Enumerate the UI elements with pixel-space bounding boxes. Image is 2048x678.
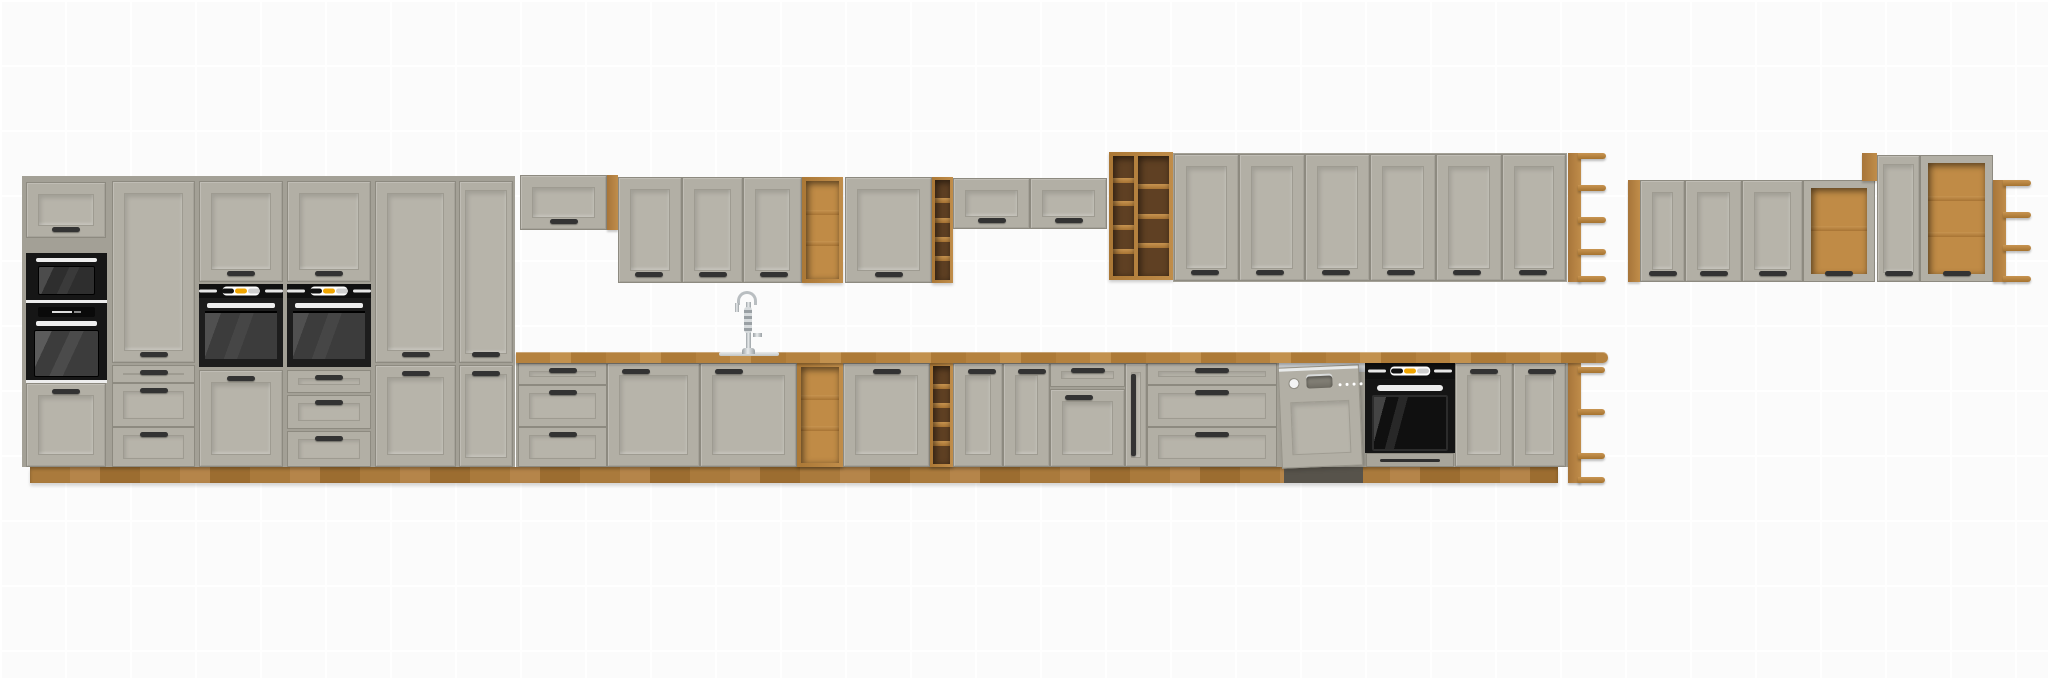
shelf-board — [1578, 217, 1606, 223]
base-drawer — [1147, 427, 1277, 467]
base-door — [700, 363, 797, 467]
drawer — [287, 395, 371, 429]
shelf-cavity — [933, 366, 950, 464]
wall-open-cabinet-tall — [1920, 155, 1993, 282]
base-drawer — [518, 385, 607, 427]
drawer — [112, 383, 195, 427]
base-drawer — [518, 363, 607, 385]
tall-door-narrow — [459, 181, 513, 363]
wall-door-tall — [1877, 155, 1920, 282]
base-drawer — [518, 427, 607, 467]
wall-door — [1436, 154, 1502, 281]
shelf-cavity — [1928, 163, 1985, 274]
shelf-board — [1578, 409, 1605, 415]
dishwasher-control-panel — [1285, 372, 1353, 395]
shelf-board — [1578, 453, 1605, 459]
oven-base-drawer — [1366, 453, 1454, 467]
shelf-board — [1578, 185, 1606, 191]
wall-door — [1640, 180, 1685, 282]
oven-control-panel — [1365, 363, 1455, 379]
shelf-board — [1578, 477, 1605, 483]
faucet-base — [742, 348, 755, 354]
base-built-in-oven — [1365, 363, 1455, 453]
wall-cubby-shelf — [932, 177, 953, 283]
tall-lower-door-narrow — [459, 365, 513, 467]
wall-door — [1305, 154, 1370, 281]
wall-door — [1239, 154, 1305, 281]
tall-door — [375, 181, 456, 363]
shelf-cavity — [806, 181, 839, 279]
wall-door — [1685, 180, 1742, 282]
shelf-cavity — [801, 367, 839, 463]
dishwasher-gap-shadow — [1284, 467, 1363, 483]
wall-open-unit — [1109, 152, 1173, 280]
drawer — [287, 370, 371, 393]
wall-door — [845, 177, 932, 283]
base-cubby-shelf — [930, 363, 953, 467]
pullout-door — [1125, 363, 1147, 467]
tall-door — [112, 181, 195, 363]
tall-lower-door — [199, 370, 283, 467]
wall-door — [1742, 180, 1803, 282]
wall-door — [1502, 154, 1566, 281]
wall-corner-shelf-panel — [1993, 180, 2006, 282]
tall-lower-door — [375, 365, 456, 467]
wall-door — [1370, 154, 1436, 281]
base-drawer — [1050, 363, 1125, 387]
shelf-cavity — [1113, 156, 1134, 276]
built-in-oven-right — [287, 284, 371, 367]
faucet-lever — [753, 333, 762, 337]
oven-control-panel — [199, 284, 283, 298]
wall-flap-cabinet — [1030, 178, 1107, 229]
drawer — [112, 365, 195, 383]
kitchen-render — [0, 0, 2048, 678]
shelf-board — [2003, 180, 2031, 186]
base-corner-shelf-panel — [1568, 363, 1581, 483]
wall-open-cabinet — [1803, 180, 1875, 282]
compact-oven — [26, 303, 107, 383]
microwave — [26, 253, 107, 300]
tall-flap-door — [26, 182, 106, 238]
base-door — [607, 363, 700, 467]
shelf-cavity — [1811, 188, 1867, 274]
wall-door — [682, 177, 743, 283]
shelf-board — [2003, 245, 2031, 251]
shelf-cavity — [1138, 156, 1169, 276]
shelf-board — [2003, 276, 2031, 282]
base-drawer — [1147, 363, 1277, 385]
drawer — [287, 431, 371, 467]
base-drawer — [1147, 385, 1277, 427]
oak-side-panel — [1628, 180, 1640, 282]
base-door — [1455, 363, 1513, 467]
vertical-handle — [1131, 374, 1136, 456]
shelf-board — [1578, 276, 1606, 282]
wall-door — [1174, 154, 1239, 281]
wall-door — [618, 177, 682, 283]
shelf-board — [2003, 212, 2031, 218]
dishwasher — [1278, 364, 1363, 468]
wall-flap-cabinet — [953, 178, 1030, 229]
base-open-shelf — [797, 363, 843, 467]
wall-open-shelf — [802, 177, 843, 283]
faucet-spout — [737, 291, 757, 305]
base-door — [1513, 363, 1566, 467]
drawer — [112, 427, 195, 467]
tall-upper-door — [287, 181, 371, 282]
base-door — [953, 363, 1003, 467]
shelf-cavity — [935, 180, 950, 280]
tall-lower-door — [26, 383, 106, 467]
wall-door — [743, 177, 802, 283]
oak-side-panel — [607, 175, 618, 230]
tall-upper-door — [199, 181, 283, 282]
shelf-board — [1578, 249, 1606, 255]
faucet-spout-tip — [735, 303, 739, 312]
base-door — [843, 363, 930, 467]
faucet-spring — [744, 307, 752, 333]
oven-control-panel — [287, 284, 371, 298]
built-in-oven-left — [199, 284, 283, 367]
base-door — [1003, 363, 1050, 467]
base-door — [1050, 389, 1125, 467]
wall-flap-cabinet — [520, 175, 607, 230]
oak-top-panel — [1862, 153, 1877, 181]
shelf-board — [1578, 153, 1606, 159]
shelf-board — [1578, 367, 1605, 373]
worktop — [516, 352, 1608, 363]
oven-display — [38, 307, 95, 317]
